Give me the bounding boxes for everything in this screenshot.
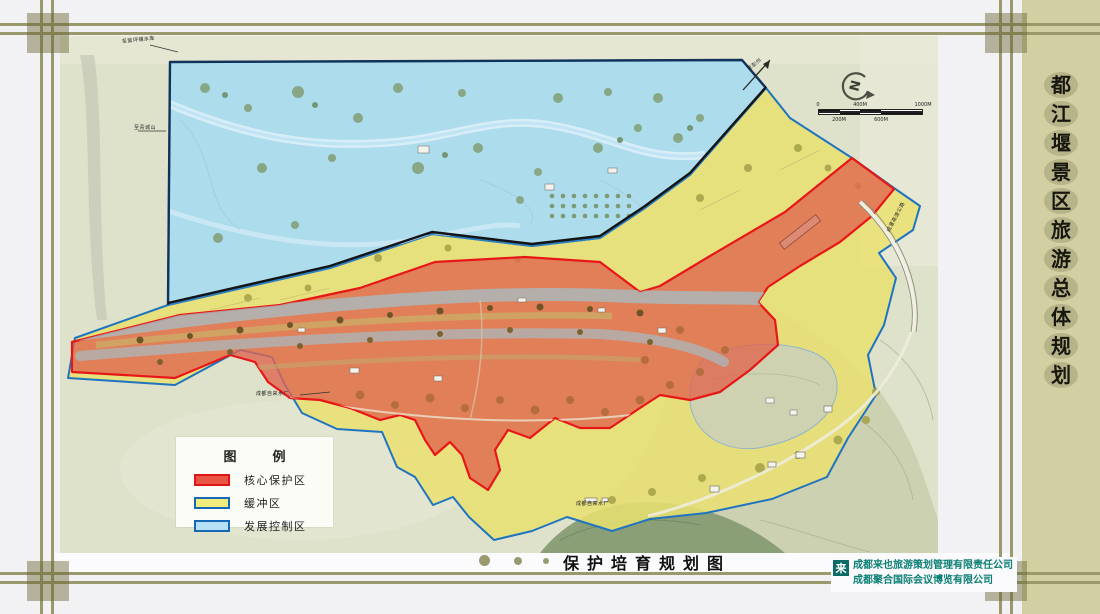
map-artwork: N [0,0,1100,614]
frame-corner [27,13,69,53]
frame-line [40,0,43,614]
scale-label: 1000M [914,102,931,108]
scale-bottom-labels: 200M600M [818,117,923,123]
planning-map-page: { "page": { "background": "#f2f2f5", "fr… [0,0,1100,614]
frame-line [0,23,1100,26]
frame-line [1010,0,1013,614]
legend-label: 发展控制区 [244,518,307,534]
frame-corner [27,561,69,601]
legend-swatch [194,474,230,486]
scale-bar: 0400M1000M 200M600M [818,102,928,128]
frame-line [51,0,54,614]
frame-line [0,32,1100,35]
scale-top-labels: 0400M1000M [818,102,923,108]
legend-label: 缓冲区 [244,495,282,511]
map-sheet-title: 保护培育规划图 [563,550,731,574]
legend-label: 核心保护区 [244,472,307,488]
legend-swatch [194,497,230,509]
company-name: 成都聚合国际会议博览有限公司 [853,574,1013,589]
legend-title: 图例 [176,446,333,465]
scale-label: 600M [874,117,888,123]
company-name: 成都来也旅游策划管理有限责任公司 [853,559,1013,574]
legend-item: 发展控制区 [194,518,333,534]
scale-label: 400M [853,102,867,108]
footer-dot [514,557,522,565]
credits-block: 来 成都来也旅游策划管理有限责任公司成都聚合国际会议博览有限公司 [831,557,1017,592]
legend-items: 核心保护区缓冲区发展控制区 [176,472,333,534]
frame-line [999,0,1002,614]
scale-label: 0 [816,102,819,108]
legend-item: 核心保护区 [194,472,333,488]
scale-label: 200M [832,117,846,123]
legend: 图例 核心保护区缓冲区发展控制区 [176,437,333,527]
frame-corner [985,13,1027,53]
legend-swatch [194,520,230,532]
footer-dot [479,555,490,566]
company-logo: 来 [833,560,849,576]
footer-dot [543,558,549,564]
legend-item: 缓冲区 [194,495,333,511]
company-names: 成都来也旅游策划管理有限责任公司成都聚合国际会议博览有限公司 [853,559,1013,588]
scale-bar-graphic [818,109,923,115]
